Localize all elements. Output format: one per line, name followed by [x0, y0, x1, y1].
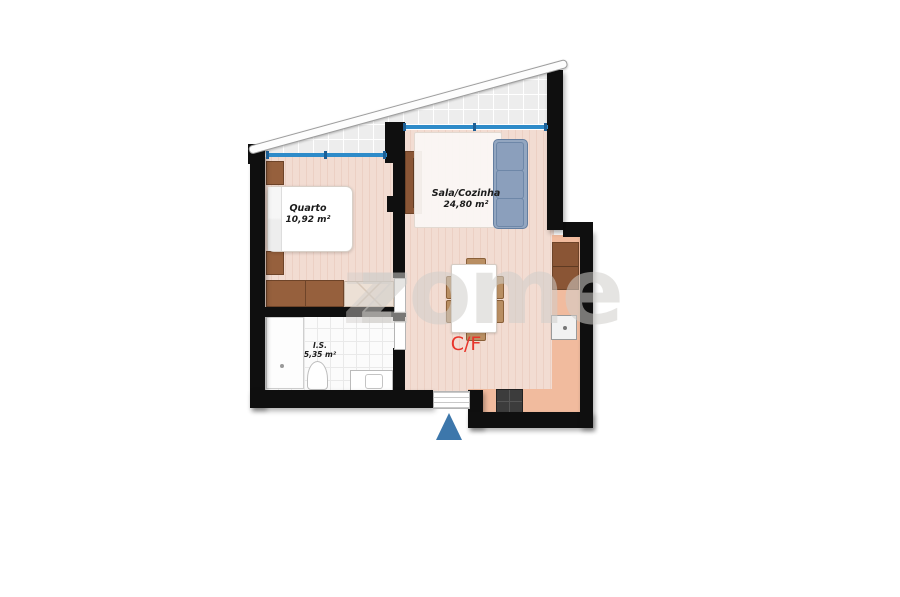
- rug: [414, 132, 502, 228]
- wall: [468, 412, 593, 428]
- wall: [250, 307, 406, 317]
- dresser: [266, 280, 344, 307]
- dining-table: [451, 264, 497, 333]
- window-tick: [473, 123, 476, 131]
- room-name: I.S.: [295, 341, 345, 350]
- room-area: 10,92 m²: [262, 215, 354, 226]
- window-tick: [324, 151, 327, 159]
- room-name: Quarto: [262, 203, 354, 215]
- room-name: Sala/Cozinha: [420, 188, 512, 200]
- entrance-arrow-icon: [436, 413, 462, 440]
- room-label-bathroom: I.S. 5,35 m²: [295, 341, 345, 360]
- stove: [496, 389, 523, 413]
- room-area: 24,80 m²: [420, 200, 512, 211]
- window-tick: [544, 123, 547, 131]
- wall: [250, 390, 433, 408]
- wall: [393, 160, 405, 278]
- wall: [250, 146, 265, 408]
- window-tick: [266, 151, 269, 159]
- wall: [387, 196, 393, 212]
- room-label-bedroom: Quarto 10,92 m²: [262, 203, 354, 226]
- toilet: [307, 361, 328, 390]
- wall: [580, 230, 593, 428]
- bathroom-door: [394, 321, 406, 350]
- room-label-living: Sala/Cozinha 24,80 m²: [420, 188, 512, 211]
- window-tick: [383, 151, 386, 159]
- entrance-door: [433, 391, 470, 409]
- sofa-cushion: [496, 142, 524, 171]
- bedroom-door: [394, 278, 406, 313]
- vanity-sink: [350, 370, 393, 391]
- cf-label: C/F: [441, 333, 491, 355]
- wall: [385, 122, 405, 163]
- room-area: 5,35 m²: [295, 350, 345, 359]
- kitchen-cabinet: [552, 242, 579, 290]
- wall: [563, 222, 593, 237]
- sofa: [493, 139, 528, 229]
- shower-drain: [280, 364, 284, 368]
- wall: [547, 70, 563, 230]
- kitchen-sink: [551, 315, 577, 340]
- wall: [393, 348, 405, 393]
- floor-plan: Quarto 10,92 m² Sala/Cozinha 24,80 m² I.…: [0, 0, 900, 597]
- nightstand-top: [266, 161, 284, 185]
- nightstand-bottom: [266, 251, 284, 275]
- window-tick: [403, 123, 406, 131]
- chest: [344, 281, 394, 307]
